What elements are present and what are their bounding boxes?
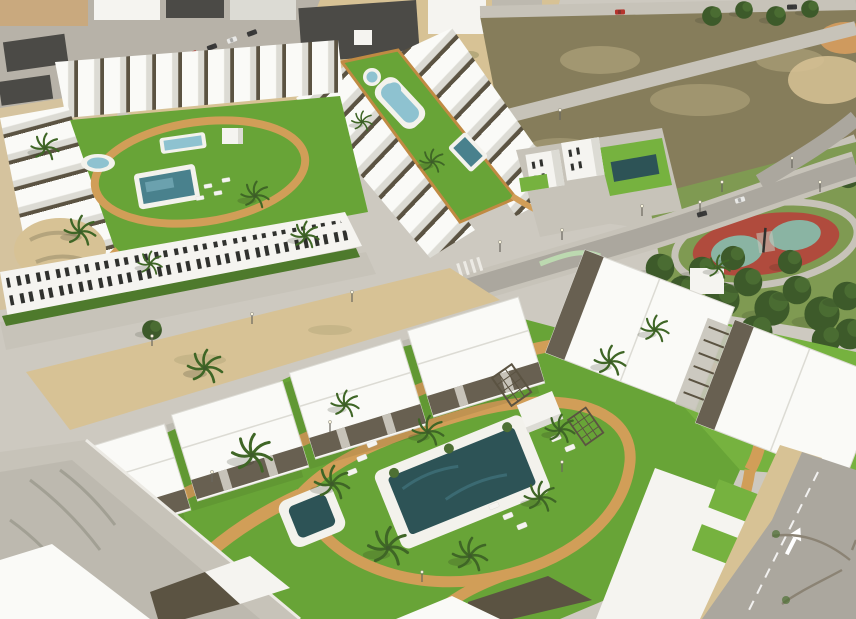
town-building bbox=[166, 0, 224, 18]
parked-car bbox=[787, 4, 797, 9]
town-building bbox=[428, 0, 486, 34]
rubble bbox=[308, 325, 352, 335]
property-aerial-photo bbox=[0, 0, 856, 619]
town-building bbox=[230, 0, 296, 20]
town-building bbox=[0, 0, 88, 26]
town-building bbox=[94, 0, 160, 20]
parked-car bbox=[615, 9, 625, 14]
pool-shed bbox=[354, 30, 372, 45]
